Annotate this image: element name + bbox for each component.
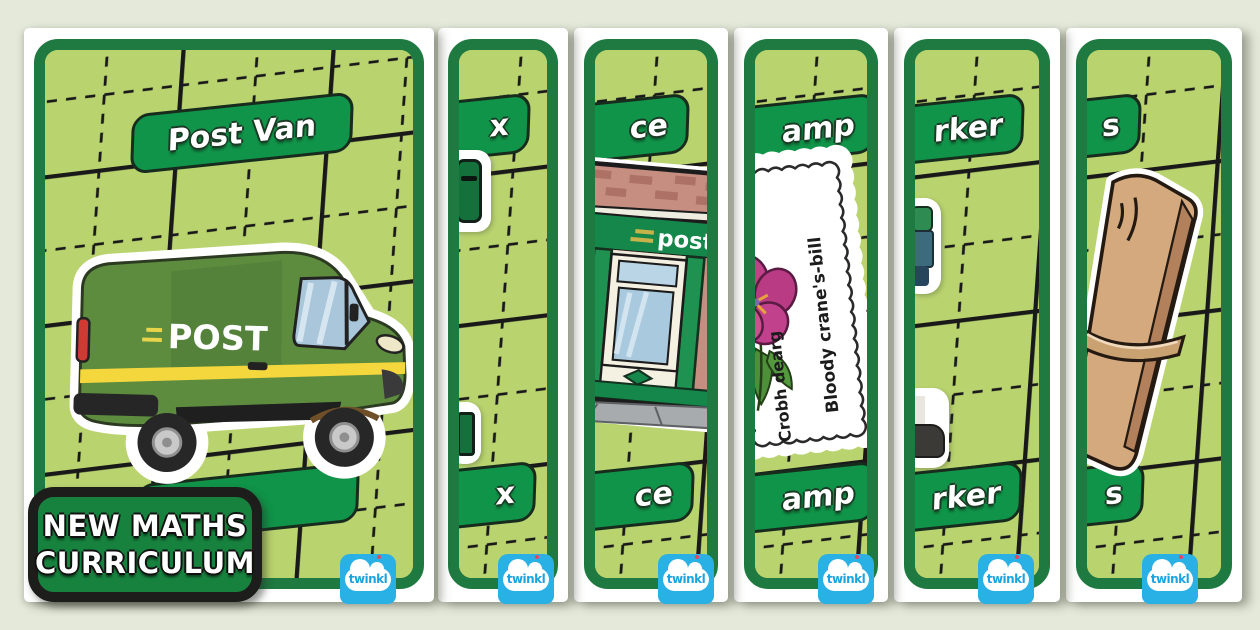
card-frame: s s [1076, 39, 1232, 589]
worker-trousers-fragment [911, 266, 929, 286]
card-title-bottom: rker [931, 475, 1001, 517]
post-van-sticker: POST [47, 211, 424, 516]
card-title-bottom: x [495, 475, 516, 512]
twinkl-logo: twinkl [340, 554, 396, 604]
flashcard-post-office: ce ce post [574, 28, 728, 602]
transom-pane [617, 261, 677, 287]
twinkl-logo-text: twinkl [827, 572, 866, 586]
twinkl-logo: twinkl [498, 554, 554, 604]
post-office-sticker: post [584, 156, 718, 453]
worker-jacket-fragment [911, 206, 933, 232]
twinkl-logo: twinkl [818, 554, 874, 604]
post-box-slot [461, 176, 477, 181]
flashcard-post-box: x x twinkl [438, 28, 568, 602]
post-box-fragment [456, 159, 482, 223]
post-box-sticker-bottom-edge [449, 402, 481, 464]
twinkl-logo-text: twinkl [507, 572, 546, 586]
card-title-bottom: ce [634, 475, 673, 514]
post-box-base-fragment [457, 412, 475, 456]
twinkl-cloud-icon: twinkl [983, 568, 1029, 591]
van-door-handle [248, 362, 268, 370]
twinkl-dot-icon [855, 555, 859, 559]
twinkl-logo-text: twinkl [349, 572, 388, 586]
twinkl-logo: twinkl [978, 554, 1034, 604]
van-mirror [349, 304, 358, 322]
van-taillight [77, 318, 90, 362]
window-divider [345, 282, 349, 345]
twinkl-cloud-icon: twinkl [345, 568, 391, 591]
card-title: s [1102, 107, 1121, 144]
van-rear-bumper [73, 393, 158, 417]
twinkl-dot-icon [1179, 555, 1183, 559]
new-maths-curriculum-badge: NEW MATHS CURRICULUM [28, 487, 262, 602]
card-title: Post Van [167, 108, 317, 159]
card-title-bottom: amp [781, 475, 855, 518]
twinkl-logo: twinkl [1142, 554, 1198, 604]
twinkl-dot-icon [1015, 555, 1019, 559]
twinkl-logo-text: twinkl [1151, 572, 1190, 586]
twinkl-logo-text: twinkl [987, 572, 1026, 586]
card-frame: ce ce post [584, 39, 718, 589]
twinkl-cloud-icon: twinkl [823, 568, 869, 591]
worker-shoe-fragment [909, 424, 945, 458]
card-frame: x x [448, 39, 558, 589]
twinkl-cloud-icon: twinkl [1147, 568, 1193, 591]
flashcard-postal-worker: rker rker twinkl [894, 28, 1060, 602]
van-post-text: POST [167, 317, 268, 359]
flashcard-letters: s s twinkl [1066, 28, 1242, 602]
card-title: x [489, 107, 510, 144]
card-frame: amp amp Bloody crane's-bill Crobh dearg [744, 39, 878, 589]
badge-line-1: NEW MATHS [43, 508, 248, 544]
post-box-sticker-top-edge [448, 150, 491, 232]
card-frame: rker rker [904, 39, 1050, 589]
card-title: rker [933, 107, 1003, 149]
twinkl-dot-icon [695, 555, 699, 559]
card-title: ce [629, 107, 668, 146]
worker-shirt-fragment [910, 230, 934, 268]
shop-sign-text: post [656, 225, 714, 256]
postal-worker-sticker-top-edge [904, 198, 941, 294]
product-preview-page: { "page": {"background": "#e5e9da"}, "ba… [0, 0, 1260, 630]
twinkl-cloud-icon: twinkl [663, 568, 709, 591]
flashcard-stamp: amp amp Bloody crane's-bill Crobh dearg [734, 28, 888, 602]
postal-worker-sticker-shoe-edge [904, 388, 949, 468]
twinkl-cloud-icon: twinkl [503, 568, 549, 591]
worker-leg-fragment [913, 396, 925, 426]
badge-line-2: CURRICULUM [35, 545, 255, 581]
twinkl-logo-text: twinkl [667, 572, 706, 586]
twinkl-logo: twinkl [658, 554, 714, 604]
twinkl-dot-icon [535, 555, 539, 559]
twinkl-dot-icon [377, 555, 381, 559]
flower-stamp-sticker: Bloody crane's-bill Crobh dearg [744, 141, 878, 469]
